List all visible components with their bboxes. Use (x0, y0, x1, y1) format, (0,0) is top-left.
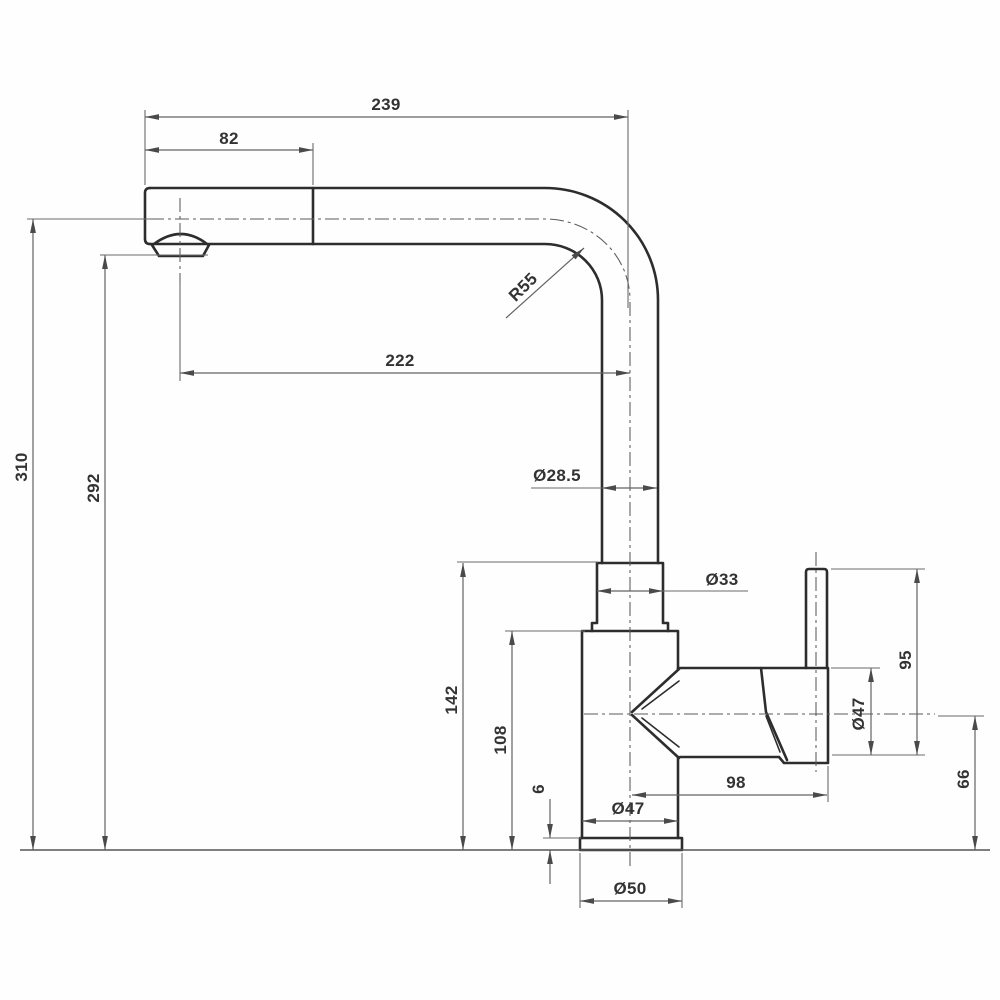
spout-centerline (150, 219, 630, 300)
dim-292-label: 292 (84, 473, 103, 502)
dim-r55-label: R55 (505, 269, 541, 305)
dim-239-ext (145, 110, 628, 308)
faucet-dimension-drawing: 239 82 222 R55 310 292 Ø28.5 Ø33 142 108… (0, 0, 1000, 1000)
dim-50-label: Ø50 (613, 879, 646, 898)
dim-66-label: 66 (954, 769, 973, 789)
spout-tip-cap (145, 188, 150, 244)
spout-inner-wall (150, 244, 602, 563)
dim-239-label: 239 (371, 95, 400, 114)
dimension-lines (27, 110, 984, 908)
cone-lower-edge (632, 715, 679, 758)
base-ring (580, 838, 682, 850)
dim-108-label: 108 (491, 725, 510, 754)
dim-33-label: Ø33 (705, 570, 738, 589)
dim-142-label: 142 (442, 685, 461, 714)
handle-joint-inner (766, 716, 780, 752)
dimension-labels: 239 82 222 R55 310 292 Ø28.5 Ø33 142 108… (12, 95, 973, 898)
dim-98-label: 98 (726, 773, 746, 792)
dim-47-body-label: Ø47 (611, 799, 644, 818)
cone-upper-edge (632, 669, 679, 712)
dim-47-handle-label: Ø47 (849, 697, 868, 730)
centerlines (150, 198, 935, 866)
dim-222-label: 222 (385, 351, 414, 370)
dim-82-label: 82 (219, 129, 239, 148)
technical-drawing-page: 239 82 222 R55 310 292 Ø28.5 Ø33 142 108… (0, 0, 1000, 1000)
dim-6-label: 6 (529, 784, 548, 794)
dim-95-label: 95 (896, 650, 915, 670)
dim-28p5-label: Ø28.5 (533, 466, 581, 485)
dim-310-label: 310 (12, 452, 31, 481)
handle-housing (678, 668, 828, 763)
